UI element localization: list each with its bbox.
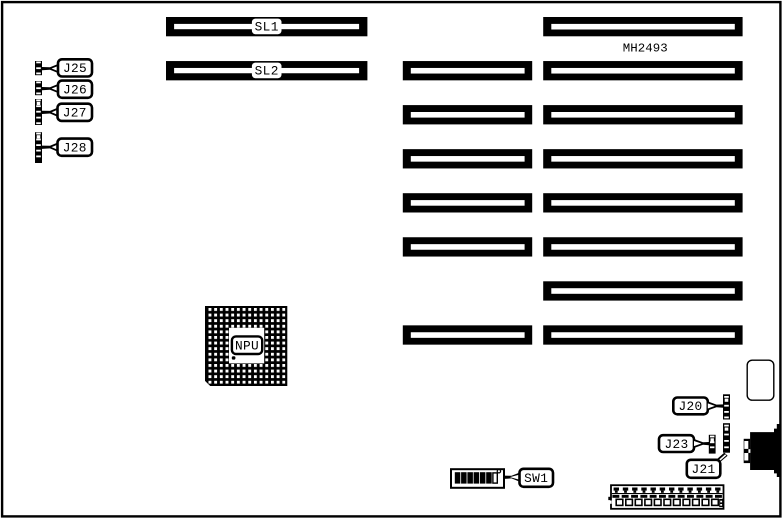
svg-text:SW1: SW1	[524, 471, 548, 486]
svg-text:NPU: NPU	[235, 339, 259, 354]
svg-text:J20: J20	[678, 399, 702, 414]
svg-text:J25: J25	[63, 61, 87, 76]
svg-text:MH2493: MH2493	[623, 42, 668, 56]
svg-text:SL2: SL2	[255, 63, 279, 78]
svg-text:J23: J23	[664, 437, 688, 452]
svg-text:J26: J26	[63, 83, 87, 98]
svg-text:SL1: SL1	[255, 19, 279, 34]
svg-text:J21: J21	[691, 462, 715, 477]
svg-text:J27: J27	[63, 106, 87, 121]
svg-text:J28: J28	[63, 141, 87, 156]
